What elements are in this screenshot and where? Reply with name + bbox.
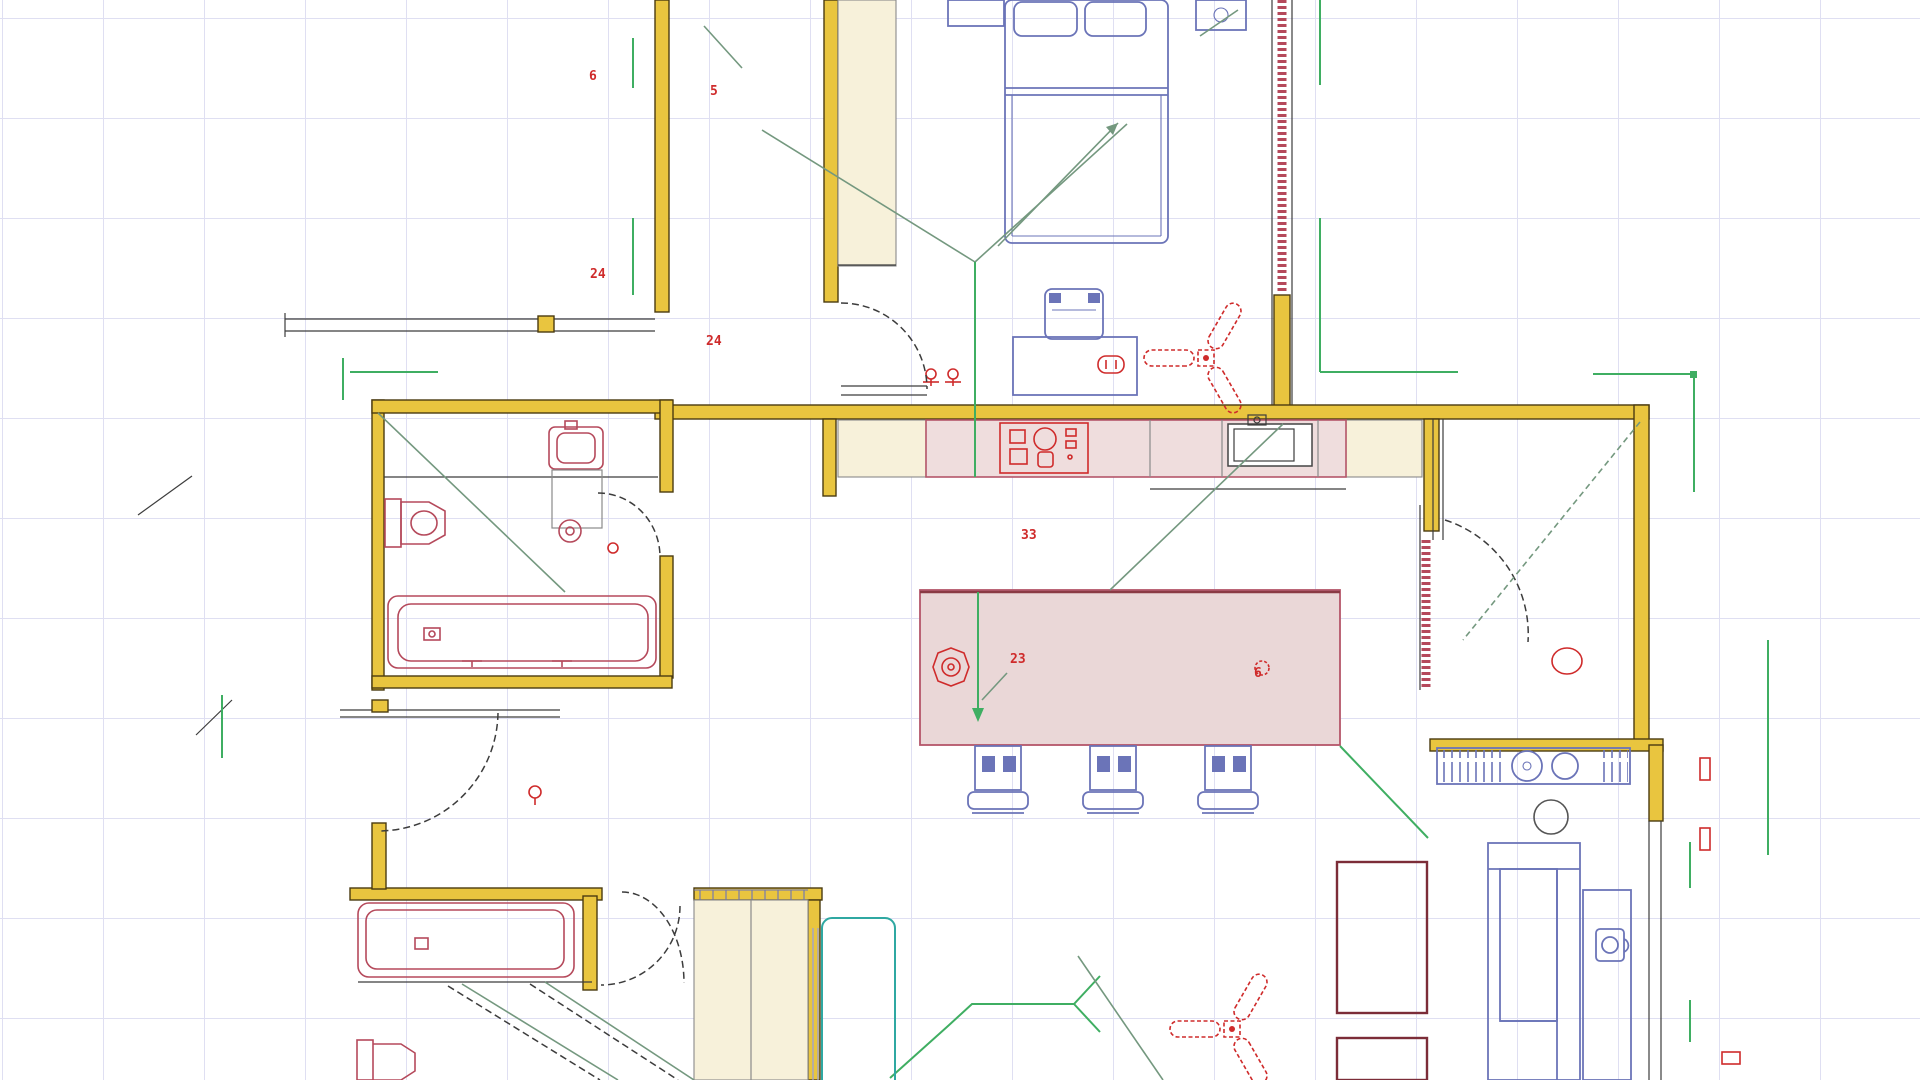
dim-annotation[interactable]: 33	[1021, 528, 1037, 543]
outlet-hall-icon[interactable]	[529, 786, 541, 798]
door-closet[interactable]	[622, 892, 684, 983]
wire-bed[interactable]	[998, 123, 1118, 246]
console-table[interactable]	[1583, 890, 1631, 1080]
small-drain-icon[interactable]	[608, 543, 618, 553]
bed[interactable]	[1005, 0, 1168, 243]
door-corridor[interactable]	[841, 303, 927, 395]
door-bath2[interactable]	[601, 906, 680, 985]
wall-corridor-left[interactable]	[655, 0, 669, 312]
wall-bath1-right-lower[interactable]	[660, 556, 673, 678]
rug-1[interactable]	[1337, 862, 1427, 1013]
wall-bath1-top[interactable]	[372, 400, 672, 413]
floor-drain-icon[interactable]	[559, 520, 581, 542]
bar-stools[interactable]	[968, 746, 1258, 813]
wall-bath2-right[interactable]	[583, 896, 597, 990]
wall-kitchen-main[interactable]	[655, 405, 1649, 419]
ceiling-fan-bedroom[interactable]	[1144, 300, 1244, 415]
wall-post-bottomleft[interactable]	[372, 700, 388, 712]
desk[interactable]	[1013, 337, 1137, 395]
bathroom-2[interactable]	[357, 903, 694, 1080]
door-hallway[interactable]	[378, 713, 498, 831]
desk-chair[interactable]	[1045, 289, 1103, 339]
wardrobe-unit[interactable]	[1437, 748, 1630, 784]
cad-drawing-canvas: 6 24 5 24 33 23 6	[0, 0, 1920, 1080]
wall-hall-stub[interactable]	[372, 823, 386, 889]
wall-pantry-right[interactable]	[1634, 405, 1649, 750]
dim-annotation[interactable]: 24	[590, 267, 606, 282]
wire-pantry[interactable]	[1463, 422, 1640, 640]
wall-bath1-bottom[interactable]	[372, 676, 672, 688]
kitchen-island[interactable]	[920, 590, 1340, 745]
floorplan-drawing: 6 24 5 24 33 23 6	[0, 0, 1920, 1080]
bedroom[interactable]	[948, 0, 1246, 395]
bar-stool[interactable]	[1198, 746, 1258, 813]
red-circle-marker[interactable]	[1552, 648, 1582, 674]
toilet[interactable]	[385, 499, 445, 547]
rug-2[interactable]	[1337, 1038, 1427, 1080]
dim-annotation[interactable]: 24	[706, 334, 722, 349]
bedroom-closet[interactable]	[838, 0, 896, 266]
wall-bedroom-right-stub[interactable]	[1274, 295, 1290, 417]
stairs[interactable]	[448, 982, 694, 1080]
dim-annotation[interactable]: 6	[589, 69, 597, 84]
wall-post-topleft[interactable]	[538, 316, 554, 332]
bar-stool[interactable]	[1083, 746, 1143, 813]
nightstand-right[interactable]	[1196, 0, 1246, 30]
door-pantry[interactable]	[1445, 520, 1528, 642]
bathtub[interactable]	[388, 596, 656, 668]
wall-bath1-left[interactable]	[372, 400, 384, 690]
counter-left-cream[interactable]	[838, 420, 926, 477]
bathtub-2[interactable]	[358, 903, 574, 977]
dim-annotation[interactable]: 6	[1254, 666, 1262, 681]
wall-outlets-right[interactable]	[1700, 758, 1740, 1064]
sliding-door[interactable]	[813, 918, 895, 1080]
dim-annotation[interactable]: 5	[710, 84, 718, 99]
wall-kitchen-stub-right[interactable]	[1424, 419, 1439, 531]
built-ins[interactable]	[694, 0, 1422, 1080]
toilet-2[interactable]	[357, 1040, 415, 1080]
nightstand-left[interactable]	[948, 0, 1004, 26]
stool-round[interactable]	[1534, 800, 1568, 834]
dim-annotation[interactable]: 23	[1010, 652, 1026, 667]
vanity-cabinet[interactable]	[552, 470, 602, 528]
outlet-duplex-icons[interactable]	[923, 369, 961, 386]
counter-right-cream[interactable]	[1346, 420, 1422, 477]
wall-kitchen-stub-left[interactable]	[823, 419, 836, 496]
wall-bath2-top[interactable]	[350, 888, 602, 900]
sofa[interactable]	[1488, 843, 1580, 1080]
wall-pantry-bottom[interactable]	[1430, 739, 1663, 751]
wiring[interactable]	[222, 0, 1768, 1080]
ceiling-fan-living[interactable]	[1170, 971, 1270, 1080]
wall-right-lower[interactable]	[1649, 745, 1663, 821]
wall-corridor-right[interactable]	[824, 0, 838, 302]
kitchen[interactable]	[920, 369, 1346, 813]
wall-bath1-right-upper[interactable]	[660, 400, 673, 492]
bar-stool[interactable]	[968, 746, 1028, 813]
wire-living[interactable]	[890, 976, 1100, 1078]
bathroom-sink[interactable]	[549, 421, 603, 469]
